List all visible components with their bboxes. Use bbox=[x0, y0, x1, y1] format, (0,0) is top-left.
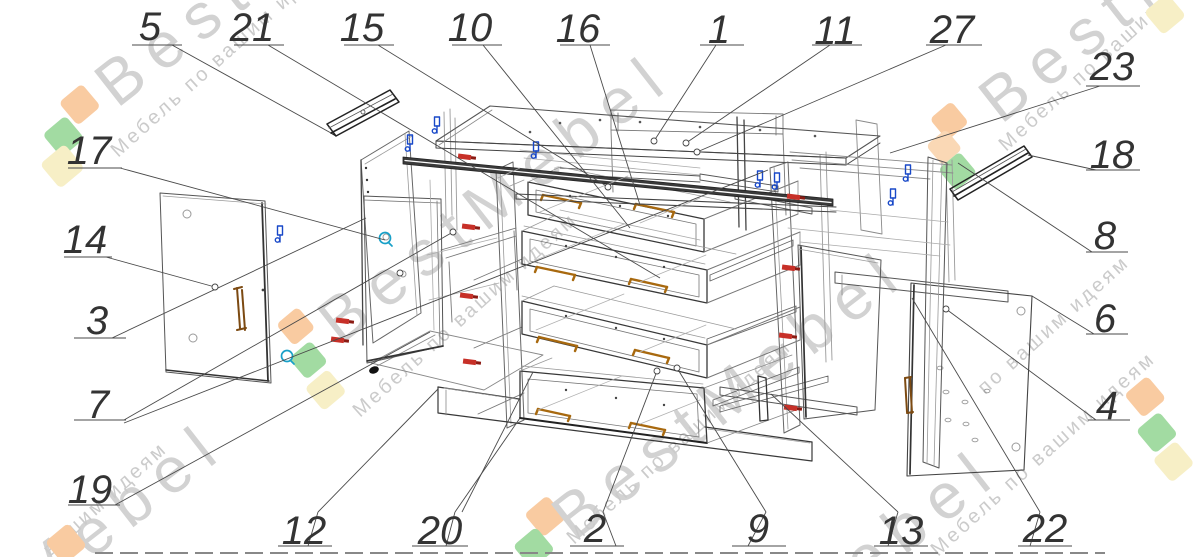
svg-text:19: 19 bbox=[68, 468, 113, 512]
svg-text:20: 20 bbox=[417, 509, 463, 553]
svg-text:7: 7 bbox=[87, 383, 111, 427]
svg-text:6: 6 bbox=[1094, 297, 1117, 341]
svg-text:17: 17 bbox=[67, 129, 113, 173]
svg-text:3: 3 bbox=[86, 299, 108, 343]
svg-text:14: 14 bbox=[63, 218, 108, 262]
svg-text:23: 23 bbox=[1089, 45, 1135, 89]
svg-text:10: 10 bbox=[448, 6, 493, 50]
svg-text:13: 13 bbox=[879, 509, 924, 553]
svg-text:4: 4 bbox=[1096, 384, 1118, 428]
svg-text:8: 8 bbox=[1094, 214, 1117, 258]
svg-text:15: 15 bbox=[340, 6, 385, 50]
svg-text:9: 9 bbox=[747, 507, 769, 551]
svg-text:1: 1 bbox=[708, 8, 730, 52]
svg-text:2: 2 bbox=[583, 507, 606, 551]
svg-text:18: 18 bbox=[1090, 133, 1135, 177]
svg-text:11: 11 bbox=[814, 9, 856, 53]
svg-text:27: 27 bbox=[929, 8, 976, 52]
svg-text:16: 16 bbox=[556, 7, 601, 51]
svg-text:5: 5 bbox=[139, 5, 162, 49]
svg-text:21: 21 bbox=[229, 6, 275, 50]
svg-text:12: 12 bbox=[282, 509, 327, 553]
svg-text:22: 22 bbox=[1022, 507, 1068, 551]
